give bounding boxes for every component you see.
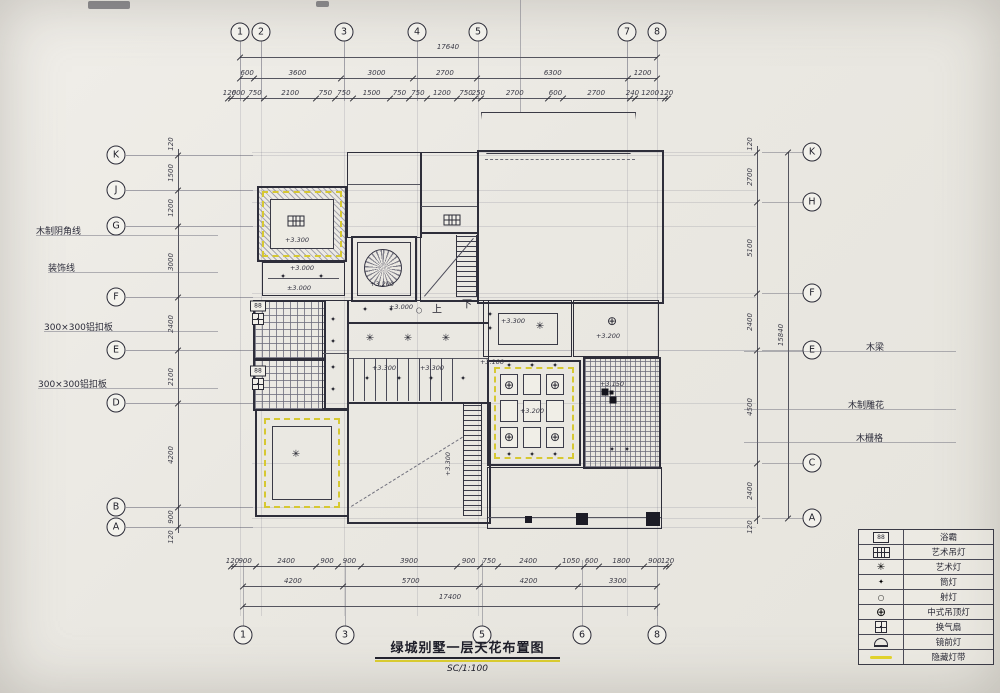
axis-leader bbox=[126, 350, 253, 351]
downlight-icon: ✦ bbox=[487, 312, 493, 319]
symbol-downlight: ✦ bbox=[487, 312, 493, 319]
symbol-downlight: ✦ bbox=[487, 326, 493, 333]
dim-top-major-value: 3600 bbox=[289, 69, 307, 77]
coffer-cell bbox=[500, 400, 518, 421]
grid-bubble-top: 8 bbox=[648, 23, 667, 42]
elevation-label: ±3.000 bbox=[287, 284, 311, 292]
drawing-sheet: 123457813568KJGFEDBAKHFECA 1764060036003… bbox=[0, 0, 1000, 693]
symbol-downlight: ✦ bbox=[624, 447, 630, 454]
elevation-label: +3.300 bbox=[372, 364, 396, 372]
axis-stem bbox=[657, 560, 658, 626]
dim-left-value: 1500 bbox=[167, 164, 175, 182]
divider bbox=[348, 184, 421, 185]
legend-row: ✳艺术灯 bbox=[859, 560, 993, 575]
dim-top-major-value: 3000 bbox=[368, 69, 386, 77]
legend-label: 换气扇 bbox=[904, 620, 993, 634]
coffer-cell bbox=[523, 374, 541, 395]
elevation-label: +3.000 bbox=[389, 303, 413, 311]
dim-left-value: 3000 bbox=[167, 253, 175, 271]
annotation-leader bbox=[744, 442, 956, 443]
dim-left-value: 1200 bbox=[167, 199, 175, 217]
dim-bottom-minor-value: 900 bbox=[648, 557, 661, 565]
dim-top-minor-value: 1500 bbox=[363, 89, 381, 97]
legend-row: 镜前灯 bbox=[859, 635, 993, 650]
elevation-label: +3.300 bbox=[420, 364, 444, 372]
dim-right-value: 2400 bbox=[746, 482, 754, 500]
dim-top-minor-value: 750 bbox=[248, 89, 261, 97]
axis-leader bbox=[126, 403, 253, 404]
dim-total-top-line bbox=[240, 57, 657, 58]
annotation-leader bbox=[744, 409, 956, 410]
grid-bubble-left: E bbox=[107, 341, 126, 360]
elevation-label: +3.200 bbox=[520, 407, 544, 415]
art-lamp-icon: ✳ bbox=[536, 322, 544, 332]
legend-symbol-cell: 88 bbox=[859, 530, 904, 544]
legend-label: 筒灯 bbox=[904, 575, 993, 589]
entry-canopy bbox=[481, 112, 636, 154]
chinese-lamp-icon: ⊕ bbox=[607, 315, 617, 327]
downlight-icon: ✦ bbox=[878, 578, 884, 586]
dim-top-minor-value: 750 bbox=[319, 89, 332, 97]
legend-label: 射灯 bbox=[904, 590, 993, 604]
symbol-downlight: ✦ bbox=[364, 376, 370, 383]
dim-bottom-minor-value: 2400 bbox=[519, 557, 537, 565]
art-lamp-icon: ✳ bbox=[404, 334, 412, 344]
symbol-downlight: ✦ bbox=[330, 317, 336, 324]
art-pendant-icon bbox=[873, 547, 890, 558]
title-underline-yellow bbox=[375, 660, 560, 662]
downlight-icon: ✦ bbox=[330, 339, 336, 346]
dim-bottom-major-value: 4200 bbox=[520, 577, 538, 585]
divider bbox=[323, 353, 348, 354]
dim-right-total-line bbox=[788, 152, 789, 518]
symbol-downlight: ✦ bbox=[396, 376, 402, 383]
dim-bottom-major-value: 3300 bbox=[609, 577, 627, 585]
grid-bubble-top: 4 bbox=[408, 23, 427, 42]
symbol-chinese-lamp: ⊕ bbox=[504, 379, 514, 391]
grid-bubble-bottom: 6 bbox=[573, 626, 592, 645]
room-double-height bbox=[477, 150, 664, 304]
dim-bottom-minor-value: 1800 bbox=[612, 557, 630, 565]
room-wood-lattice-ceiling bbox=[583, 357, 661, 469]
downlight-icon: ✦ bbox=[552, 363, 558, 370]
dim-top-major-line bbox=[240, 78, 657, 79]
drawing-title: 绿城别墅一层天花布置图 bbox=[375, 637, 560, 656]
legend-row: ⊕中式吊顶灯 bbox=[859, 605, 993, 620]
exhaust-fan-icon bbox=[252, 378, 264, 390]
dim-right-total: 15840 bbox=[777, 324, 785, 346]
symbol-downlight: ✦ bbox=[506, 363, 512, 370]
dim-right-edge: 120 bbox=[746, 520, 754, 533]
bath-heater-icon: 88 bbox=[250, 366, 266, 377]
elevation-label: +3.300 bbox=[501, 317, 525, 325]
elevation-label: +3.200 bbox=[370, 280, 394, 288]
symbol-art-pendant bbox=[288, 216, 305, 227]
dim-left-value: 4200 bbox=[167, 446, 175, 464]
grid-bubble-bottom: 8 bbox=[648, 626, 667, 645]
legend-label: 艺术灯 bbox=[904, 560, 993, 574]
legend-label: 浴霸 bbox=[904, 530, 993, 544]
symbol-downlight: ✦ bbox=[529, 363, 535, 370]
dim-right-value: 4500 bbox=[746, 398, 754, 416]
dim-top-minor-value: 1200 bbox=[641, 89, 659, 97]
legend-row: ○射灯 bbox=[859, 590, 993, 605]
symbol-chinese-lamp: ⊕ bbox=[504, 431, 514, 443]
bath-heater-icon: 88 bbox=[873, 532, 889, 543]
legend-symbol-cell: ✦ bbox=[859, 575, 904, 589]
grid-bubble-left: A bbox=[107, 518, 126, 537]
symbol-downlight: ✦ bbox=[552, 452, 558, 459]
drawing-scale: SC/1:100 bbox=[375, 664, 560, 674]
elevation-label: +3.300 bbox=[444, 452, 452, 476]
legend-symbol-cell bbox=[859, 620, 904, 634]
dim-bottom-minor-value: 120 bbox=[226, 557, 239, 565]
axis-leader bbox=[762, 152, 803, 153]
legend-symbol-cell: ○ bbox=[859, 590, 904, 604]
grid-bubble-bottom: 1 bbox=[234, 626, 253, 645]
legend-row: ✦筒灯 bbox=[859, 575, 993, 590]
downlight-icon: ✦ bbox=[396, 376, 402, 383]
downlight-icon: ✦ bbox=[624, 447, 630, 454]
porch-edge bbox=[488, 517, 661, 518]
grid-bubble-top: 5 bbox=[469, 23, 488, 42]
dim-left-line bbox=[178, 149, 179, 533]
dim-top-minor-value: 1200 bbox=[433, 89, 451, 97]
art-lamp-icon: ✳ bbox=[366, 334, 374, 344]
room-top-center bbox=[347, 152, 422, 238]
symbol-downlight: ✦ bbox=[318, 274, 324, 281]
symbol-chinese-lamp: ⊕ bbox=[550, 379, 560, 391]
downlight-icon: ✦ bbox=[318, 274, 324, 281]
grid-bubble-top: 3 bbox=[335, 23, 354, 42]
dim-right-value: 2700 bbox=[746, 168, 754, 186]
dim-bottom-major-value: 4200 bbox=[284, 577, 302, 585]
column bbox=[576, 513, 588, 525]
dim-top-minor-value: 2100 bbox=[281, 89, 299, 97]
scan-smudge bbox=[316, 1, 329, 7]
grid-bubble-right: F bbox=[803, 284, 822, 303]
grid-bubble-left: J bbox=[107, 181, 126, 200]
symbol-exhaust-fan bbox=[252, 313, 264, 325]
symbol-downlight: ✦ bbox=[506, 452, 512, 459]
legend-label: 镜前灯 bbox=[904, 635, 993, 649]
symbol-exhaust-fan bbox=[252, 378, 264, 390]
stair-up-label: 上 bbox=[432, 301, 442, 316]
symbol-downlight: ✦ bbox=[280, 274, 286, 281]
downlight-icon: ✦ bbox=[364, 376, 370, 383]
column bbox=[525, 516, 532, 523]
axis-leader bbox=[762, 518, 803, 519]
symbol-art-lamp: ✳ bbox=[404, 334, 412, 344]
axis-leader bbox=[126, 527, 253, 528]
grid-bubble-left: F bbox=[107, 288, 126, 307]
legend-row: 换气扇 bbox=[859, 620, 993, 635]
symbol-downlight: ✦ bbox=[330, 365, 336, 372]
downlight-icon: ✦ bbox=[487, 326, 493, 333]
dim-top-minor-value: 2700 bbox=[506, 89, 524, 97]
symbol-downlight: ✦ bbox=[330, 387, 336, 394]
axis-leader bbox=[126, 507, 253, 508]
dim-total-top: 17640 bbox=[437, 43, 459, 51]
legend-symbol-cell bbox=[859, 635, 904, 649]
chinese-lamp-icon: ⊕ bbox=[876, 605, 886, 619]
legend-symbol-cell bbox=[859, 650, 904, 664]
legend-label: 艺术吊灯 bbox=[904, 545, 993, 559]
downlight-icon: ✦ bbox=[330, 387, 336, 394]
downlight-icon: ✦ bbox=[330, 365, 336, 372]
dim-top-minor-value: 750 bbox=[393, 89, 406, 97]
downlight-icon: ✦ bbox=[609, 447, 615, 454]
dim-bottom-minor-value: 900 bbox=[343, 557, 356, 565]
light-strip-icon bbox=[870, 656, 892, 659]
axis-leader bbox=[126, 155, 253, 156]
axis-stem bbox=[345, 560, 346, 626]
coffer-cell bbox=[546, 400, 564, 421]
dim-right-value: 2400 bbox=[746, 313, 754, 331]
dim-top-major-value: 600 bbox=[241, 69, 254, 77]
dim-bottom-major-line bbox=[243, 586, 657, 587]
dim-bottom-minor-line bbox=[231, 566, 669, 567]
downlight-icon: ✦ bbox=[362, 307, 368, 314]
legend-symbol-cell bbox=[859, 545, 904, 559]
dim-total-bottom: 17400 bbox=[439, 593, 461, 601]
symbol-bath-heater: 88 bbox=[250, 301, 266, 312]
downlight-icon: ✦ bbox=[428, 376, 434, 383]
symbol-chinese-lamp: ⊕ bbox=[607, 315, 617, 327]
symbol-downlight: ✦ bbox=[529, 452, 535, 459]
elevation-label: +3.300 bbox=[285, 236, 309, 244]
annotation-leader bbox=[44, 331, 218, 332]
dim-bottom-minor-value: 750 bbox=[482, 557, 495, 565]
dim-bottom-minor-value: 900 bbox=[238, 557, 251, 565]
symbol-art-pendant bbox=[444, 215, 461, 226]
annotation-leader bbox=[38, 388, 218, 389]
scan-smudge bbox=[88, 1, 130, 9]
axis-leader bbox=[126, 190, 253, 191]
art-lamp-icon: ✳ bbox=[292, 450, 300, 460]
exhaust-fan-icon bbox=[252, 313, 264, 325]
axis-leader bbox=[126, 226, 253, 227]
axis-stem bbox=[482, 560, 483, 626]
dim-left-value: 900 bbox=[167, 510, 175, 523]
dim-left-value: 2400 bbox=[167, 315, 175, 333]
dim-top-minor-value: 750 bbox=[411, 89, 424, 97]
stair-down-label: 下 bbox=[462, 296, 472, 311]
roof-overhang-dashed bbox=[485, 159, 635, 160]
symbol-art-lamp: ✳ bbox=[536, 322, 544, 332]
dim-bottom-minor-value: 120 bbox=[661, 557, 674, 565]
dim-top-major-value: 2700 bbox=[436, 69, 454, 77]
dim-top-minor-line bbox=[228, 98, 668, 99]
art-pendant-icon bbox=[288, 216, 305, 227]
dim-bottom-minor-value: 600 bbox=[585, 557, 598, 565]
dim-top-major-value: 6300 bbox=[544, 69, 562, 77]
grid-bubble-top: 7 bbox=[618, 23, 637, 42]
legend-row: 88浴霸 bbox=[859, 530, 993, 545]
elevation-label: +3.200 bbox=[596, 332, 620, 340]
legend-row: 隐藏灯带 bbox=[859, 650, 993, 664]
grid-bubble-right: C bbox=[803, 454, 822, 473]
center-line bbox=[268, 278, 339, 279]
dim-top-minor-value: 600 bbox=[549, 89, 562, 97]
spotlight-icon: ○ bbox=[878, 593, 885, 602]
grid-bubble-left: B bbox=[107, 498, 126, 517]
grid-bubble-top: 2 bbox=[252, 23, 271, 42]
downlight-icon: ✦ bbox=[552, 452, 558, 459]
dim-top-minor-value: 600 bbox=[232, 89, 245, 97]
grid-bubble-left: D bbox=[107, 394, 126, 413]
dim-left-edge: 120 bbox=[167, 530, 175, 543]
chinese-lamp-icon: ⊕ bbox=[504, 431, 514, 443]
column bbox=[646, 512, 660, 526]
grid-bubble-right: H bbox=[803, 193, 822, 212]
grid-bubble-right: K bbox=[803, 143, 822, 162]
dim-left-edge: 120 bbox=[167, 137, 175, 150]
dim-top-minor-value: 2700 bbox=[587, 89, 605, 97]
art-lamp-icon: ✳ bbox=[442, 334, 450, 344]
elevation-label: +3.000 bbox=[290, 264, 314, 272]
room-dining bbox=[483, 300, 572, 357]
grid-bubble-left: K bbox=[107, 146, 126, 165]
dim-right-value: 5100 bbox=[746, 239, 754, 257]
grid-bubble-right: A bbox=[803, 509, 822, 528]
axis-leader bbox=[762, 463, 803, 464]
symbol-bath-heater: 88 bbox=[250, 366, 266, 377]
downlight-icon: ✦ bbox=[460, 376, 466, 383]
symbol-downlight: ✦ bbox=[362, 307, 368, 314]
downlight-icon: ✦ bbox=[330, 317, 336, 324]
grid-axis-vertical bbox=[240, 42, 241, 616]
dim-total-bottom-line bbox=[243, 606, 657, 607]
dim-bottom-minor-value: 900 bbox=[462, 557, 475, 565]
inner-panel bbox=[272, 426, 332, 500]
dim-left-value: 2100 bbox=[167, 368, 175, 386]
title-underline-dark bbox=[375, 657, 560, 659]
divider bbox=[421, 206, 478, 207]
legend-symbol-cell: ✳ bbox=[859, 560, 904, 574]
dim-bottom-minor-value: 2400 bbox=[277, 557, 295, 565]
dim-bottom-minor-value: 1050 bbox=[562, 557, 580, 565]
bath-heater-icon: 88 bbox=[250, 301, 266, 312]
mirror-light-icon bbox=[874, 638, 888, 647]
grid-bubble-top: 1 bbox=[231, 23, 250, 42]
stair-treads-living bbox=[463, 404, 482, 516]
dim-top-minor-value: 250 bbox=[472, 89, 485, 97]
downlight-icon: ✦ bbox=[529, 363, 535, 370]
axis-leader bbox=[126, 297, 253, 298]
dim-top-major-value: 1200 bbox=[634, 69, 652, 77]
symbol-cross-dark bbox=[602, 389, 617, 404]
annotation-leader bbox=[48, 272, 218, 273]
chinese-lamp-icon: ⊕ bbox=[550, 379, 560, 391]
spotlight-icon: ○ bbox=[416, 306, 423, 314]
annotation-leader bbox=[744, 351, 956, 352]
dim-bottom-major-value: 5700 bbox=[402, 577, 420, 585]
coffer-cell bbox=[523, 427, 541, 448]
chinese-lamp-icon: ⊕ bbox=[550, 431, 560, 443]
room-yellow-strip-ceiling bbox=[255, 409, 349, 517]
symbol-downlight: ✦ bbox=[552, 363, 558, 370]
dim-bottom-minor-value: 3900 bbox=[400, 557, 418, 565]
grid-bubble-left: G bbox=[107, 217, 126, 236]
cross-dark-icon bbox=[602, 389, 617, 404]
annotation-leader bbox=[36, 235, 218, 236]
symbol-art-lamp: ✳ bbox=[442, 334, 450, 344]
title-block: 绿城别墅一层天花布置图 SC/1:100 bbox=[375, 637, 560, 674]
exhaust-fan-icon bbox=[875, 621, 887, 633]
dim-top-minor-value: 240 bbox=[626, 89, 639, 97]
symbol-spotlight: ○ bbox=[416, 306, 423, 314]
symbol-art-lamp: ✳ bbox=[292, 450, 300, 460]
porch bbox=[487, 467, 662, 529]
legend-label: 隐藏灯带 bbox=[904, 650, 993, 664]
symbol-downlight: ✦ bbox=[330, 339, 336, 346]
grid-bubble-bottom: 3 bbox=[336, 626, 355, 645]
symbol-art-lamp: ✳ bbox=[366, 334, 374, 344]
dim-right-edge: 120 bbox=[746, 137, 754, 150]
symbol-downlight: ✦ bbox=[428, 376, 434, 383]
legend-symbol-cell: ⊕ bbox=[859, 605, 904, 619]
downlight-icon: ✦ bbox=[506, 363, 512, 370]
downlight-icon: ✦ bbox=[280, 274, 286, 281]
symbol-chinese-lamp: ⊕ bbox=[550, 431, 560, 443]
room-study bbox=[573, 300, 659, 357]
dim-top-minor-value: 750 bbox=[337, 89, 350, 97]
legend-row: 艺术吊灯 bbox=[859, 545, 993, 560]
downlight-icon: ✦ bbox=[529, 452, 535, 459]
legend-label: 中式吊顶灯 bbox=[904, 605, 993, 619]
symbol-downlight: ✦ bbox=[460, 376, 466, 383]
art-pendant-icon bbox=[444, 215, 461, 226]
axis-stem bbox=[243, 560, 244, 626]
dim-bottom-minor-value: 900 bbox=[320, 557, 333, 565]
axis-stem bbox=[582, 560, 583, 626]
dim-top-minor-value: 120 bbox=[660, 89, 673, 97]
chinese-lamp-icon: ⊕ bbox=[504, 379, 514, 391]
elevation-label: +3.150 bbox=[600, 380, 624, 388]
axis-leader bbox=[762, 293, 803, 294]
symbol-downlight: ✦ bbox=[609, 447, 615, 454]
legend-table: 88浴霸艺术吊灯✳艺术灯✦筒灯○射灯⊕中式吊顶灯换气扇镜前灯隐藏灯带 bbox=[858, 529, 994, 665]
downlight-icon: ✦ bbox=[506, 452, 512, 459]
grid-bubble-right: E bbox=[803, 341, 822, 360]
art-lamp-icon: ✳ bbox=[877, 562, 885, 573]
elevation-label: +3.100 bbox=[480, 358, 504, 366]
axis-leader bbox=[762, 202, 803, 203]
